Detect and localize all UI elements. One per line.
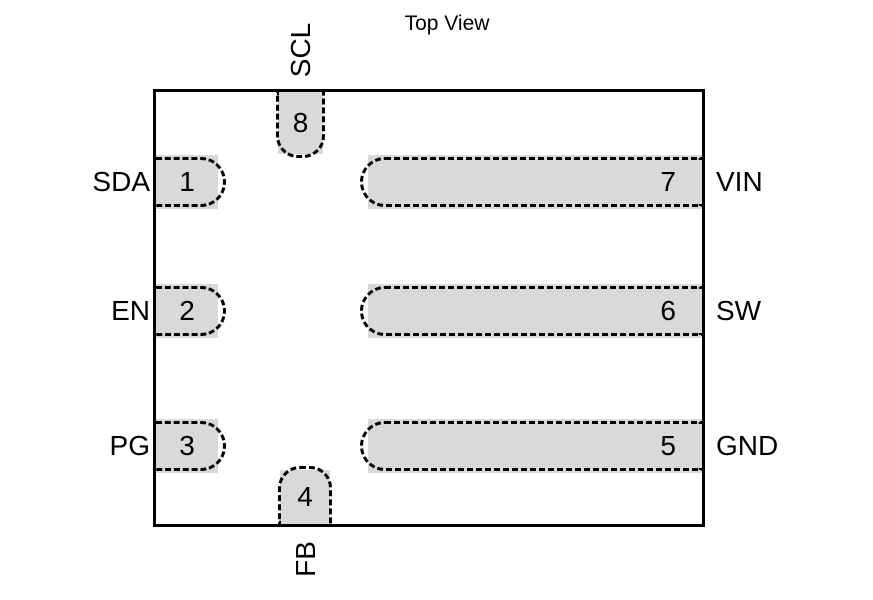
pin-number-3: 3 bbox=[156, 419, 218, 473]
diagram-title: Top View bbox=[405, 12, 490, 36]
pin-label-en: EN bbox=[40, 294, 150, 328]
pin-number-2: 2 bbox=[156, 284, 218, 338]
pin-label-fb: FB bbox=[289, 489, 323, 600]
pin-label-sw: SW bbox=[716, 294, 761, 328]
pin-label-gnd: GND bbox=[716, 429, 778, 463]
pinout-diagram: Top View 1 SDA 2 EN 3 PG 4 FB 5 GND 6 SW… bbox=[0, 0, 873, 600]
pin-label-scl: SCL bbox=[284, 0, 318, 120]
pin-number-5: 5 bbox=[368, 419, 702, 473]
pin-number-1: 1 bbox=[156, 155, 218, 209]
pin-label-vin: VIN bbox=[716, 165, 763, 199]
pin-number-7: 7 bbox=[368, 155, 702, 209]
pin-label-pg: PG bbox=[40, 429, 150, 463]
pin-label-sda: SDA bbox=[40, 165, 150, 199]
pin-number-6: 6 bbox=[368, 284, 702, 338]
